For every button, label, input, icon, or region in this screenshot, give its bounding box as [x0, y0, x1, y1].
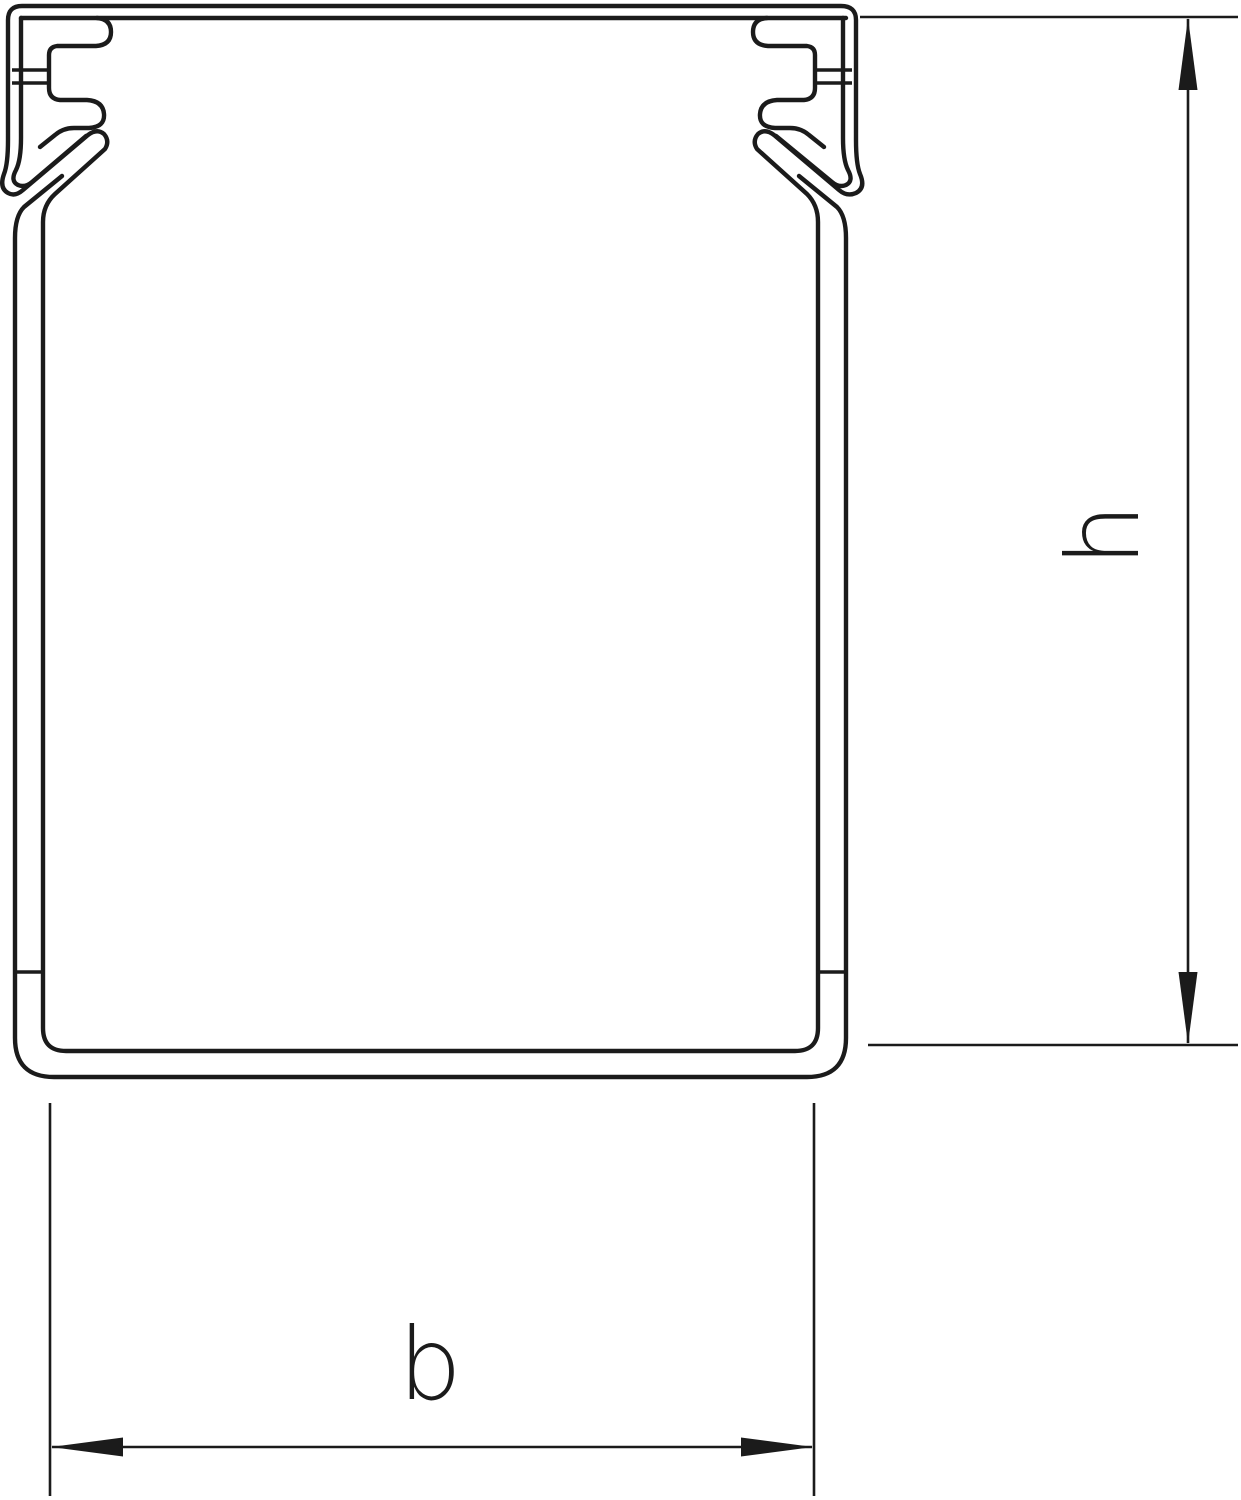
height-dimension-label: h: [1045, 503, 1162, 566]
left-clip-tick-marks: [12, 70, 49, 83]
duct-wall-and-bottom: [15, 176, 846, 1077]
height-arrow-down: [1179, 972, 1198, 1044]
duct-outer-contour: [2, 6, 862, 1051]
height-arrow-up: [1179, 18, 1198, 90]
width-arrow-right: [741, 1438, 813, 1457]
left-cover-groove: [40, 18, 111, 147]
width-dimension-label: b: [398, 1306, 461, 1423]
height-dimension: h: [860, 17, 1238, 1045]
duct-profile: [2, 6, 862, 1077]
technical-drawing-page: h b: [0, 0, 1241, 1500]
duct-cross-section-diagram: h b: [0, 0, 1241, 1500]
right-clip-tick-marks: [816, 70, 852, 83]
width-arrow-left: [51, 1438, 123, 1457]
width-dimension: b: [50, 1103, 814, 1496]
right-cover-groove: [753, 18, 824, 147]
